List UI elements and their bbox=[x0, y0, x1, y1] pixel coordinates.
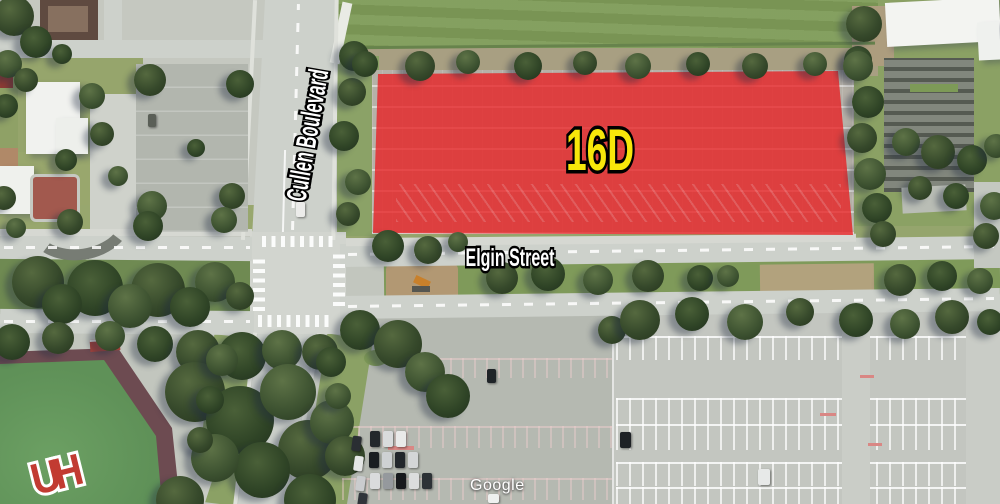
elgin-label-text: Elgin Street bbox=[452, 242, 567, 274]
tree-canopy bbox=[187, 427, 213, 453]
tree-canopy bbox=[803, 52, 827, 76]
street-label-elgin-street: Elgin Street Elgin Street bbox=[452, 242, 567, 274]
tree-canopy bbox=[786, 298, 814, 326]
red-curb-mark bbox=[860, 375, 874, 378]
tree-canopy bbox=[742, 53, 768, 79]
tree-canopy bbox=[632, 260, 664, 292]
excavator-body bbox=[412, 286, 430, 292]
tree-canopy bbox=[137, 326, 173, 362]
tree-canopy bbox=[226, 282, 254, 310]
red-curb-mark bbox=[820, 413, 836, 416]
parking-row bbox=[438, 358, 612, 378]
tree-canopy bbox=[108, 166, 128, 186]
lane-line bbox=[4, 246, 250, 249]
car bbox=[408, 452, 418, 468]
tree-canopy bbox=[219, 183, 245, 209]
tree-canopy bbox=[862, 193, 892, 223]
building-roof bbox=[977, 21, 1000, 60]
tree-canopy bbox=[95, 321, 125, 351]
northeast-parking-lot bbox=[884, 58, 974, 192]
tree-canopy bbox=[405, 51, 435, 81]
tree-canopy bbox=[20, 26, 52, 58]
tree-canopy bbox=[260, 364, 316, 420]
parking-row bbox=[616, 424, 1000, 450]
car bbox=[487, 369, 496, 383]
car bbox=[369, 452, 379, 468]
crosswalk-south bbox=[258, 315, 332, 327]
hatched-parking-marks bbox=[396, 184, 841, 222]
tree-canopy bbox=[42, 284, 82, 324]
building-wing-roof bbox=[56, 118, 88, 154]
tree-canopy bbox=[727, 304, 763, 340]
tree-canopy bbox=[884, 264, 916, 296]
tree-canopy bbox=[338, 78, 366, 106]
car bbox=[409, 473, 419, 489]
parking-row bbox=[616, 336, 1000, 360]
tree-canopy bbox=[573, 51, 597, 75]
tree-canopy bbox=[196, 386, 224, 414]
tree-canopy bbox=[921, 135, 955, 169]
car bbox=[370, 473, 380, 489]
map-canvas[interactable]: 16D 16D Cullen Boulevard Cullen Boulevar… bbox=[0, 0, 1000, 504]
lot-boundary-line bbox=[612, 334, 614, 504]
tree-canopy bbox=[90, 122, 114, 146]
tree-canopy bbox=[583, 265, 613, 295]
tree-canopy bbox=[890, 309, 920, 339]
tree-canopy bbox=[625, 53, 651, 79]
tree-canopy bbox=[14, 68, 38, 92]
parking-row bbox=[616, 487, 1000, 504]
tree-canopy bbox=[316, 347, 346, 377]
car bbox=[148, 114, 156, 127]
tree-canopy bbox=[211, 207, 237, 233]
tree-canopy bbox=[52, 44, 72, 64]
tree-canopy bbox=[57, 209, 83, 235]
parking-row bbox=[616, 398, 1000, 424]
tree-canopy bbox=[686, 52, 710, 76]
tree-canopy bbox=[226, 70, 254, 98]
tree-canopy bbox=[957, 145, 987, 175]
red-curb-mark bbox=[868, 443, 882, 446]
car bbox=[383, 431, 393, 447]
tree-canopy bbox=[870, 221, 896, 247]
parking-median-grass bbox=[910, 84, 958, 92]
car bbox=[383, 473, 393, 489]
car bbox=[396, 431, 406, 447]
parking-aisle bbox=[842, 330, 870, 504]
tree-canopy bbox=[847, 123, 877, 153]
tree-canopy bbox=[839, 303, 873, 337]
car bbox=[357, 492, 368, 504]
tree-canopy bbox=[717, 265, 739, 287]
car bbox=[296, 202, 305, 217]
tree-canopy bbox=[329, 121, 359, 151]
car bbox=[395, 452, 405, 468]
side-street-vertical bbox=[104, 0, 122, 46]
parking-aisle bbox=[966, 330, 1000, 504]
tree-canopy bbox=[854, 158, 886, 190]
car bbox=[396, 473, 406, 489]
crosswalk-east bbox=[333, 252, 345, 306]
zone-16d-label-text: 16D bbox=[559, 118, 641, 184]
tree-canopy bbox=[846, 6, 882, 42]
tree-canopy bbox=[6, 218, 26, 238]
car bbox=[422, 473, 432, 489]
crosswalk-north bbox=[262, 236, 334, 247]
tree-canopy bbox=[345, 169, 371, 195]
crosswalk-west bbox=[253, 255, 265, 311]
tree-canopy bbox=[206, 344, 238, 376]
tree-canopy bbox=[973, 223, 999, 249]
tree-canopy bbox=[352, 51, 378, 77]
tree-canopy bbox=[170, 287, 210, 327]
tree-canopy bbox=[414, 236, 442, 264]
tree-canopy bbox=[134, 64, 166, 96]
tree-canopy bbox=[325, 383, 351, 409]
tree-canopy bbox=[943, 183, 969, 209]
tree-canopy bbox=[687, 265, 713, 291]
tree-canopy bbox=[935, 300, 969, 334]
tree-canopy bbox=[514, 52, 542, 80]
car bbox=[488, 494, 499, 503]
tree-canopy bbox=[133, 211, 163, 241]
google-watermark: Google bbox=[470, 477, 525, 495]
tree-canopy bbox=[234, 442, 290, 498]
tree-canopy bbox=[852, 86, 884, 118]
tree-canopy bbox=[456, 50, 480, 74]
tree-canopy bbox=[908, 176, 932, 200]
tree-canopy bbox=[42, 322, 74, 354]
car bbox=[620, 432, 631, 448]
tree-canopy bbox=[426, 374, 470, 418]
tree-canopy bbox=[927, 261, 957, 291]
tree-canopy bbox=[187, 139, 205, 157]
tree-canopy bbox=[372, 230, 404, 262]
tree-canopy bbox=[892, 128, 920, 156]
parking-row bbox=[616, 462, 1000, 486]
tree-canopy bbox=[980, 192, 1000, 220]
zone-16d-label: 16D 16D bbox=[559, 118, 641, 184]
tree-canopy bbox=[55, 149, 77, 171]
car bbox=[382, 452, 392, 468]
tree-canopy bbox=[843, 51, 873, 81]
car bbox=[758, 469, 770, 485]
car bbox=[370, 431, 380, 447]
tree-canopy bbox=[977, 309, 1000, 335]
tree-canopy bbox=[620, 300, 660, 340]
tree-canopy bbox=[79, 83, 105, 109]
tree-canopy bbox=[336, 202, 360, 226]
tree-canopy bbox=[675, 297, 709, 331]
brick-house-ridge bbox=[48, 6, 88, 32]
tree-canopy bbox=[967, 268, 993, 294]
